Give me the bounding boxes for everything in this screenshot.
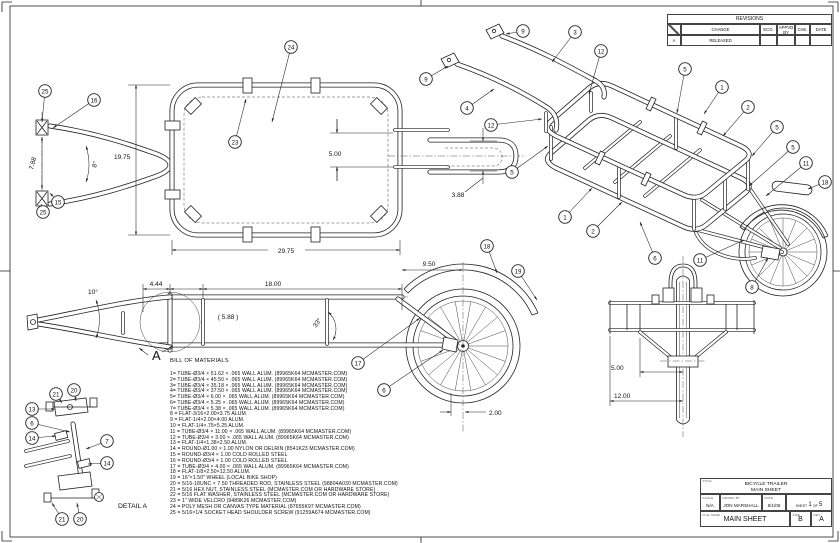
dim-5-00: 5.00 <box>329 151 342 158</box>
scale-cell: SCALE N/A <box>700 494 720 511</box>
rev-letter: A <box>667 35 681 46</box>
svg-text:6: 6 <box>653 255 657 262</box>
svg-text:18: 18 <box>484 243 491 250</box>
drawn-by-cell: DRAWN BY JON MARSHALL <box>720 494 762 511</box>
part-balloon: 6 <box>640 222 661 264</box>
top-view: 29.75 5.00 3.88 24 23 <box>165 41 526 255</box>
bill-of-materials: BILL OF MATERIALS 1= TUBE-Ø3/4 × 51.62 ×… <box>170 358 398 517</box>
svg-text:12: 12 <box>598 48 605 55</box>
detail-a-label: DETAIL A <box>118 503 148 510</box>
dim-4-44: 4.44 <box>150 281 163 288</box>
title-label: TITLE <box>703 480 712 484</box>
part-balloon: 2 <box>587 202 622 237</box>
svg-text:12: 12 <box>488 122 495 129</box>
dim-3-88: 3.88 <box>452 192 465 199</box>
rev-change-value: RELEASED <box>681 35 760 46</box>
part-balloon: 7 <box>86 435 113 449</box>
rev-cell: REV A <box>811 511 832 527</box>
svg-text:5: 5 <box>510 169 514 176</box>
revisions-table: REVISIONS CHANGE ECO. APPVD BY CHK. DATE… <box>667 14 832 46</box>
iso-view: 9 3 12 9 4 12 5 5 1 2 <box>420 24 832 296</box>
dim-8deg: 8° <box>90 160 99 168</box>
svg-text:5: 5 <box>683 66 687 73</box>
svg-text:7: 7 <box>105 438 109 445</box>
svg-text:13: 13 <box>29 406 36 413</box>
part-balloon: 5 <box>752 121 783 156</box>
part-balloon: 16 <box>53 94 100 128</box>
svg-text:11: 11 <box>803 160 810 167</box>
rev-value: A <box>819 516 824 523</box>
part-balloon: 20 <box>74 503 87 525</box>
part-balloon: 3 <box>552 26 581 62</box>
dim-10deg: 10° <box>88 288 98 296</box>
dim-9-50: 9.50 <box>423 261 436 268</box>
svg-text:3: 3 <box>573 29 577 36</box>
rear-view: 5.00 12.00 <box>610 256 754 437</box>
sheet-total: 5 <box>819 502 822 508</box>
revisions-title: REVISIONS <box>667 14 832 24</box>
svg-text:14: 14 <box>104 460 111 467</box>
file-name-cell: FILE NAME MAIN SHEET <box>700 511 790 527</box>
rev-col-eco: ECO. <box>760 24 777 35</box>
drawing-canvas: 7.88 8° 19.75 25 16 15 25 <box>0 0 840 543</box>
part-balloon: 9 <box>506 25 529 38</box>
part-balloon: 1 <box>559 188 592 223</box>
date-cell: DATE 8/1/05 <box>762 494 786 511</box>
part-balloon: 8 <box>746 258 768 293</box>
part-balloon: 2 <box>723 101 754 136</box>
rev-col-appvd: APPVD BY <box>777 24 795 35</box>
svg-text:1: 1 <box>563 214 567 221</box>
part-balloon: 5 <box>506 146 548 178</box>
dim-5-00-rear: 5.00 <box>611 365 624 372</box>
part-balloon: 5 <box>749 141 799 186</box>
dim-19-75: 19.75 <box>114 154 131 161</box>
size-cell: SIZE B <box>790 511 811 527</box>
svg-text:8: 8 <box>750 284 754 291</box>
part-balloon: 4 <box>461 89 494 114</box>
dim-5-88-ref: ( 5.88 ) <box>218 314 239 321</box>
svg-text:20: 20 <box>77 516 84 523</box>
part-balloon: 1 <box>704 81 728 114</box>
svg-text:21: 21 <box>59 516 66 523</box>
dim-29-75: 29.75 <box>278 248 295 255</box>
svg-text:18: 18 <box>822 179 829 186</box>
svg-text:6: 6 <box>30 420 34 427</box>
svg-text:16: 16 <box>91 97 98 104</box>
bom-list: 1= TUBE-Ø3/4 × 51.62 × .065 WALL ALUM. (… <box>170 372 398 517</box>
svg-text:2: 2 <box>746 104 750 111</box>
size-value: B <box>798 516 803 523</box>
part-balloon: 25 <box>39 85 52 122</box>
svg-text:5: 5 <box>791 144 795 151</box>
part-balloon: 23 <box>229 99 246 148</box>
hub-plate <box>761 246 780 260</box>
rev-col-change: CHANGE <box>681 24 760 35</box>
svg-text:20: 20 <box>71 387 78 394</box>
svg-text:15: 15 <box>55 199 62 206</box>
rev-symbol-cell <box>667 24 681 35</box>
svg-text:14: 14 <box>29 435 36 442</box>
dim-18-00: 18.00 <box>265 281 282 288</box>
detail-a-view: DETAIL A 21 20 13 6 14 7 14 21 20 <box>26 384 148 526</box>
file-name-value: MAIN SHEET <box>724 516 767 523</box>
part-balloon: 6 <box>26 417 70 432</box>
svg-text:11: 11 <box>697 257 704 264</box>
svg-text:9: 9 <box>521 28 525 35</box>
svg-text:2: 2 <box>591 228 595 235</box>
part-balloon: 20 <box>68 384 81 401</box>
svg-text:9: 9 <box>424 76 428 83</box>
dim-2-00: 2.00 <box>489 410 502 417</box>
sheet-number: 1 <box>808 502 811 508</box>
part-balloon: 21 <box>52 503 68 525</box>
title-block: TITLE BICYCLE TRAILER MAIN SHEET SCALE N… <box>700 478 832 527</box>
dim-7-88: 7.88 <box>28 156 38 170</box>
svg-text:1: 1 <box>720 84 724 91</box>
front-view: 7.88 8° 19.75 25 16 15 25 <box>28 85 170 235</box>
dropout-plate <box>442 337 458 352</box>
part-balloon: 21 <box>50 388 63 403</box>
section-letter: A <box>152 348 161 363</box>
svg-text:23: 23 <box>232 139 239 146</box>
part-balloon: 19 <box>512 265 537 300</box>
bom-title: BILL OF MATERIALS <box>170 358 398 364</box>
svg-text:19: 19 <box>515 268 522 275</box>
svg-text:4: 4 <box>465 105 469 112</box>
svg-text:21: 21 <box>53 391 60 398</box>
svg-text:5: 5 <box>775 124 779 131</box>
bom-item: 25 = 5/16×1/4 SOCKET HEAD SHOULDER SCREW… <box>170 511 398 517</box>
part-balloon: 5 <box>677 63 691 113</box>
part-balloon: 14 <box>88 457 113 470</box>
title-cell: TITLE BICYCLE TRAILER MAIN SHEET <box>700 478 832 494</box>
fender-flap <box>772 181 813 196</box>
date-value: 8/1/05 <box>768 503 781 508</box>
drawn-by-value: JON MARSHALL <box>723 503 758 508</box>
scale-value: N/A <box>706 503 714 508</box>
svg-text:25: 25 <box>42 88 49 95</box>
dim-12-00: 12.00 <box>614 393 631 400</box>
drawing-sheet: 7.88 8° 19.75 25 16 15 25 <box>0 0 840 543</box>
svg-text:25: 25 <box>40 209 47 216</box>
dim-33deg: 33° <box>311 316 323 329</box>
part-balloon: 12 <box>485 119 542 132</box>
part-balloon: 9 <box>420 66 448 85</box>
part-balloon: 24 <box>272 41 297 122</box>
sheet-cell: SHEET 1 OF 5 <box>786 494 832 511</box>
svg-text:24: 24 <box>288 44 295 51</box>
rev-col-chk: CHK. <box>795 24 810 35</box>
rev-col-date: DATE <box>810 24 832 35</box>
part-balloon: 14 <box>26 432 56 445</box>
